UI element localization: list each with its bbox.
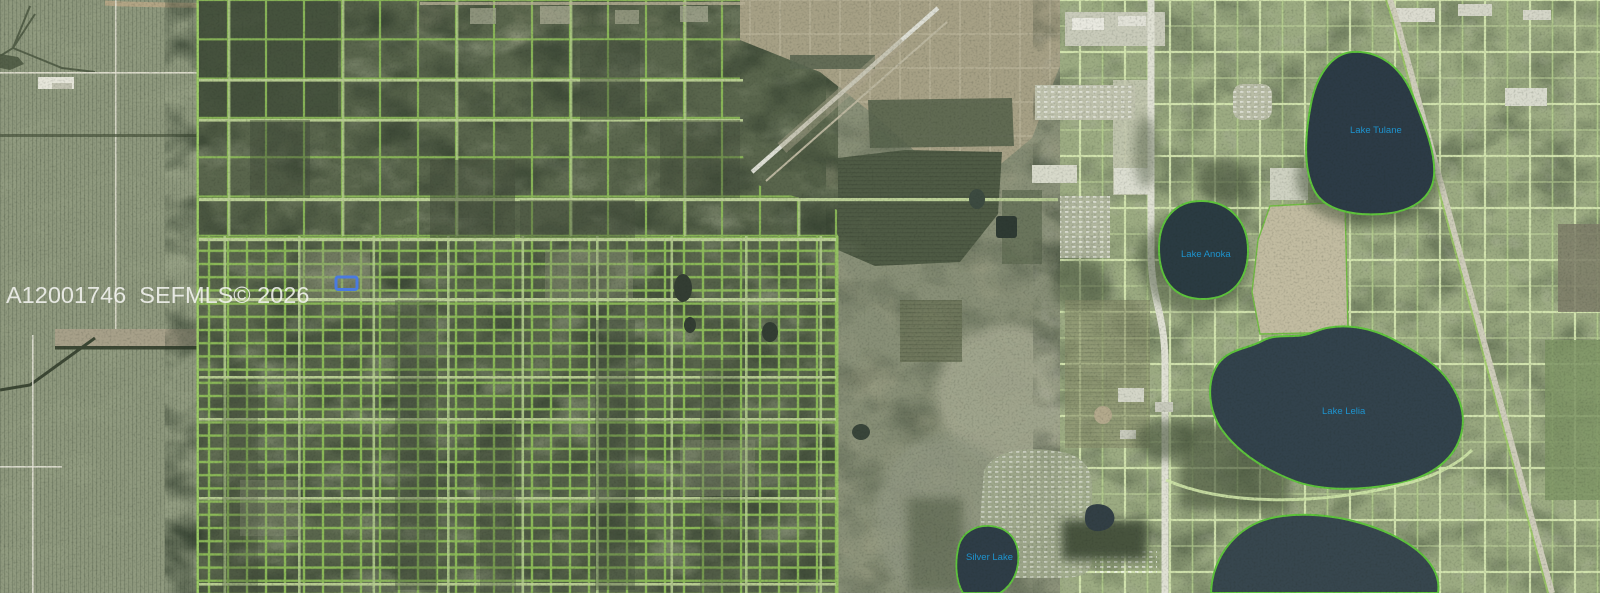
svg-text:A12001746 SEFMLS© 2026: A12001746 SEFMLS© 2026 [6, 282, 309, 308]
